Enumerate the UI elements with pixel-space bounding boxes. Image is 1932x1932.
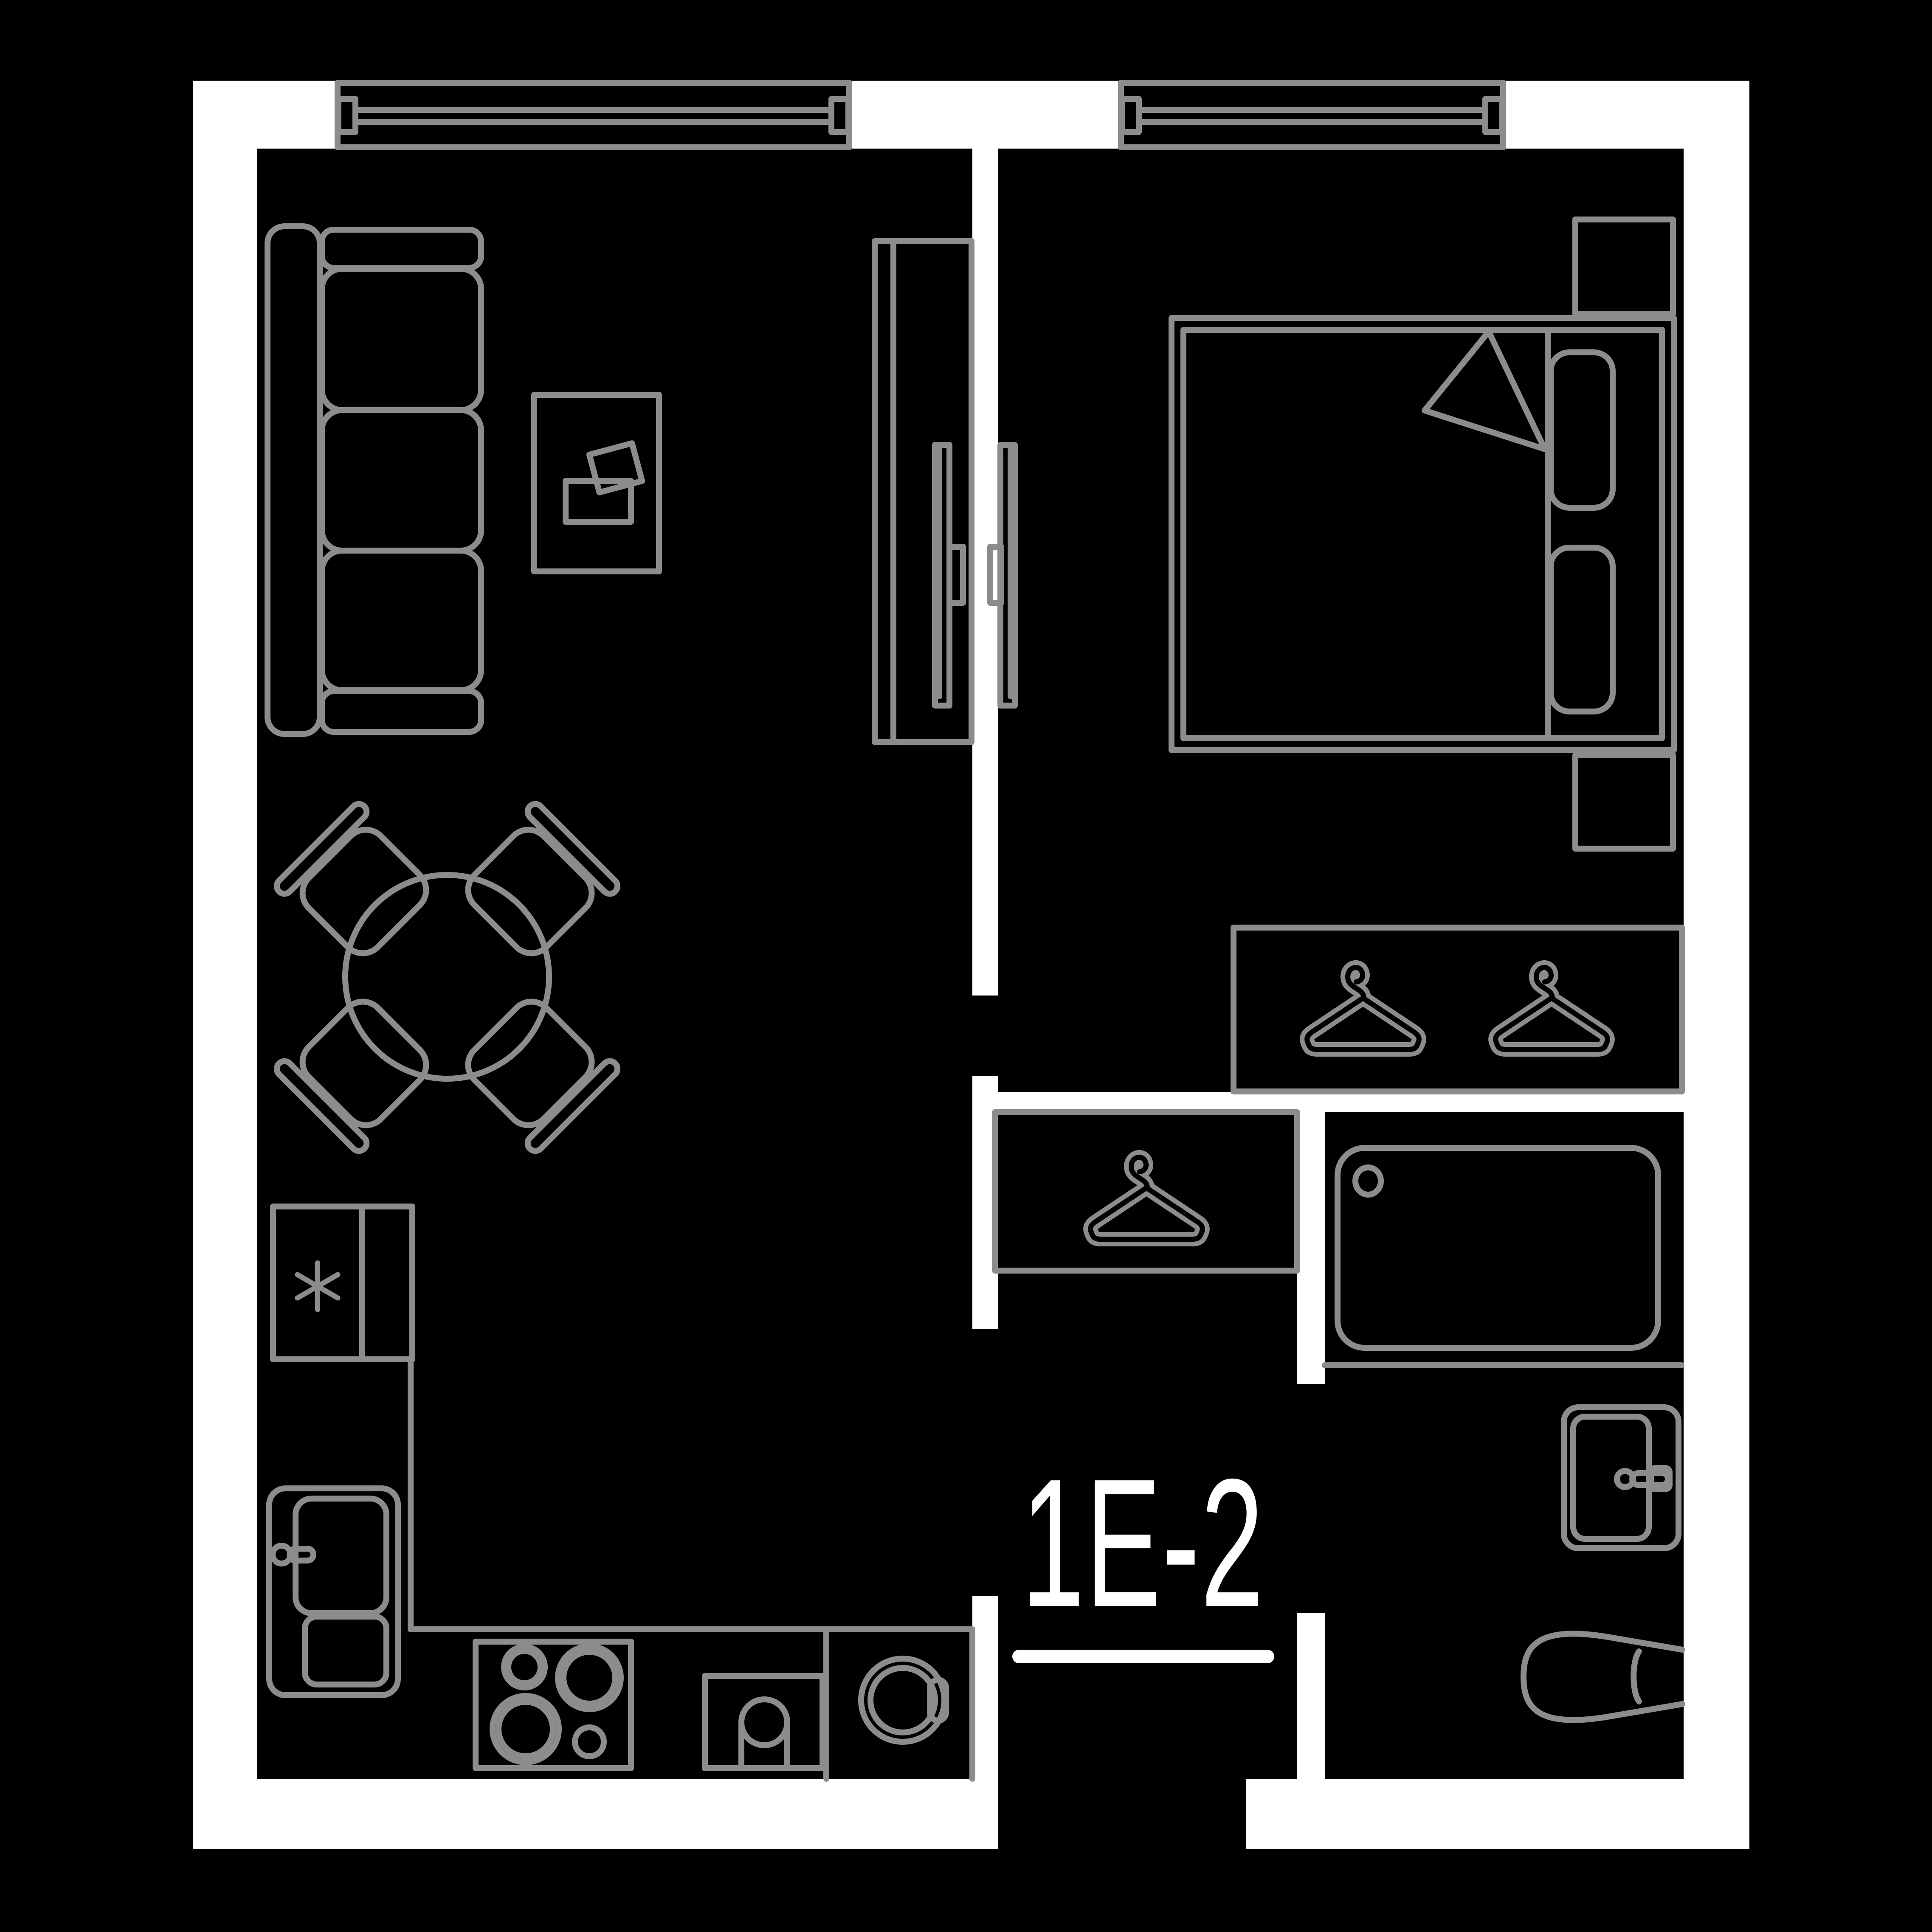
wall-bathroom-lower <box>1297 1613 1325 1779</box>
wall-bedroom <box>972 1092 1684 1112</box>
floor-plan: 1E-2 <box>0 0 1932 1932</box>
wall-left <box>193 81 257 1849</box>
wall-right <box>1684 81 1749 1849</box>
wall-bottom-b <box>1246 1779 1747 1849</box>
wall-bathroom-upper <box>1297 1112 1325 1384</box>
wall-divider-upper <box>972 149 998 996</box>
unit-label-text: 1E-2 <box>1021 1441 1265 1645</box>
unit-label: 1E-2 <box>1019 1441 1267 1656</box>
wall-top-b <box>849 81 1121 149</box>
wall-divider-lower <box>972 1596 998 1779</box>
wall-top-a <box>193 81 338 149</box>
wall-bottom-a <box>193 1779 998 1849</box>
